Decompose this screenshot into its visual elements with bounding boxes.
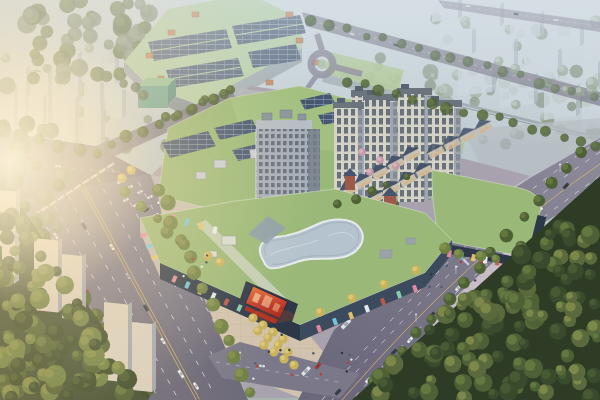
aerial-rendering-canvas	[0, 0, 600, 400]
sun-glare-soft	[0, 0, 320, 400]
scene-svg	[0, 0, 600, 400]
